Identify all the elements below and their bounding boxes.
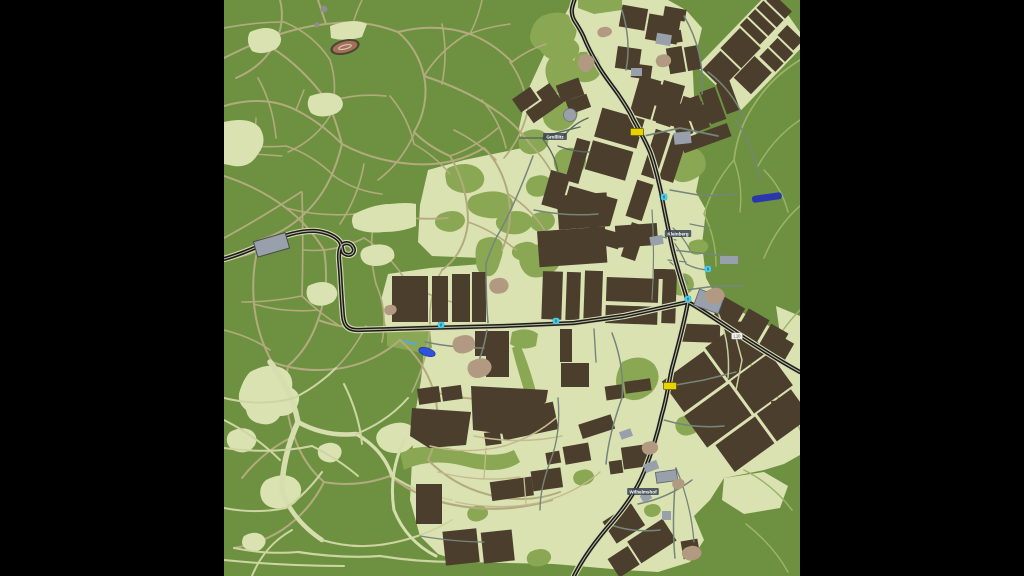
svg-text:Kleinberg: Kleinberg <box>667 232 688 237</box>
svg-text:Großlitz: Großlitz <box>546 135 564 140</box>
svg-text:Wilhelmshof: Wilhelmshof <box>629 490 657 495</box>
svg-text:L10: L10 <box>734 334 742 339</box>
